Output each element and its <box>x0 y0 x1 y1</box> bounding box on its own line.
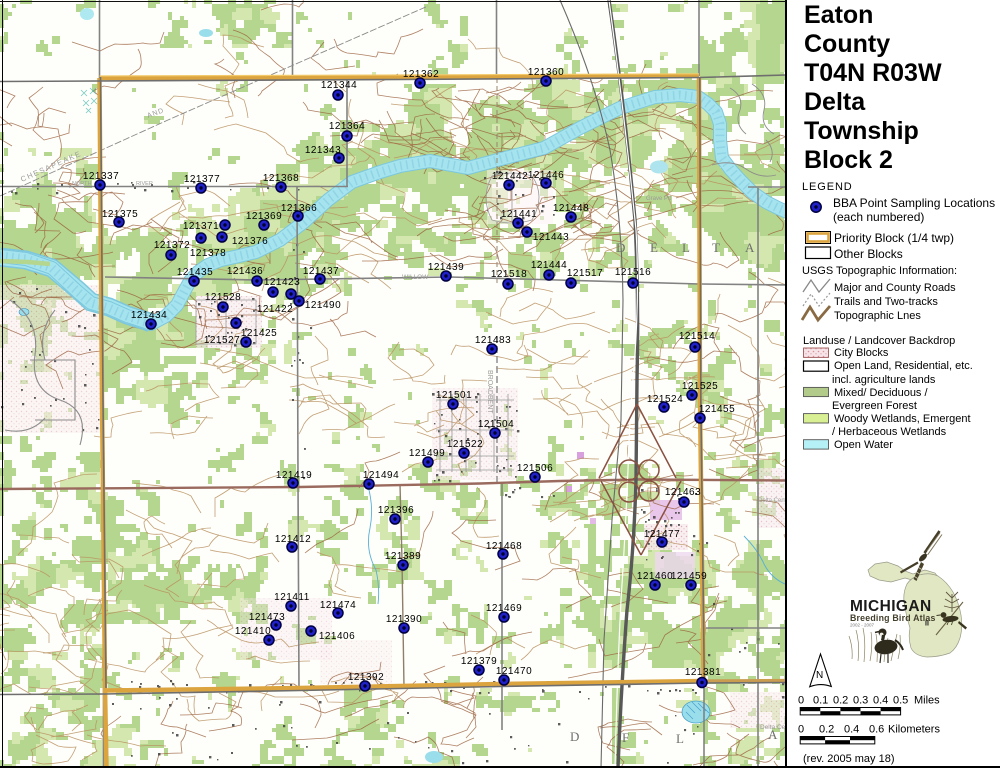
svg-text:0: 0 <box>798 695 804 707</box>
svg-text:121494: 121494 <box>363 470 399 481</box>
svg-text:121366: 121366 <box>281 203 317 214</box>
svg-text:A: A <box>745 240 755 255</box>
svg-text:121392: 121392 <box>348 672 384 683</box>
svg-text:121528: 121528 <box>205 292 241 303</box>
svg-text:121468: 121468 <box>486 541 522 552</box>
svg-text:0.4: 0.4 <box>844 724 859 736</box>
svg-text:D: D <box>616 240 625 255</box>
svg-text:BROADBENT: BROADBENT <box>486 370 493 414</box>
svg-text:121483: 121483 <box>475 335 511 346</box>
svg-text:121448: 121448 <box>553 203 589 214</box>
svg-text:121477: 121477 <box>644 529 680 540</box>
svg-text:121410: 121410 <box>235 626 271 637</box>
svg-text:121419: 121419 <box>276 470 312 481</box>
svg-text:121460: 121460 <box>637 571 673 582</box>
svg-text:121522: 121522 <box>447 439 483 450</box>
svg-text:121412: 121412 <box>275 534 311 545</box>
svg-text:121389: 121389 <box>385 551 421 562</box>
svg-text:121444: 121444 <box>531 260 567 271</box>
svg-text:0.5: 0.5 <box>893 695 908 707</box>
svg-text:121411: 121411 <box>274 592 310 603</box>
svg-text:121443: 121443 <box>533 232 569 243</box>
svg-text:0.2: 0.2 <box>819 724 834 736</box>
svg-text:121372: 121372 <box>154 240 190 251</box>
svg-text:121422: 121422 <box>257 304 293 315</box>
svg-text:121506: 121506 <box>517 463 553 474</box>
svg-text:121527: 121527 <box>204 335 240 346</box>
svg-text:Miles: Miles <box>914 695 940 707</box>
svg-text:0.1: 0.1 <box>813 695 828 707</box>
svg-text:121473: 121473 <box>249 612 285 623</box>
svg-text:121439: 121439 <box>428 262 464 273</box>
svg-text:121396: 121396 <box>378 505 414 516</box>
svg-text:121524: 121524 <box>647 394 683 405</box>
svg-text:Grave Pit: Grave Pit <box>646 196 671 202</box>
svg-text:121441: 121441 <box>501 209 537 220</box>
svg-text:121459: 121459 <box>671 571 707 582</box>
svg-text:(rev. 2005 may 18): (rev. 2005 may 18) <box>803 753 895 765</box>
svg-text:121446: 121446 <box>528 170 564 181</box>
svg-text:121463: 121463 <box>665 487 701 498</box>
svg-text:121517: 121517 <box>567 268 603 279</box>
svg-text:121434: 121434 <box>131 310 167 321</box>
svg-text:121435: 121435 <box>177 267 213 278</box>
svg-text:121337: 121337 <box>83 171 119 182</box>
svg-text:0.4: 0.4 <box>873 695 888 707</box>
svg-text:121378: 121378 <box>190 248 226 259</box>
svg-text:N: N <box>816 670 823 681</box>
svg-text:D: D <box>570 729 579 744</box>
svg-text:121499: 121499 <box>409 448 445 459</box>
svg-text:121343: 121343 <box>305 145 341 156</box>
svg-text:121379: 121379 <box>461 656 497 667</box>
svg-text:121371: 121371 <box>183 221 219 232</box>
svg-text:E: E <box>650 240 658 255</box>
svg-text:121381: 121381 <box>685 667 721 678</box>
svg-text:121360: 121360 <box>528 67 564 78</box>
svg-text:121516: 121516 <box>615 267 651 278</box>
svg-text:121436: 121436 <box>227 266 263 277</box>
svg-text:121514: 121514 <box>679 331 715 342</box>
svg-text:121368: 121368 <box>263 173 299 184</box>
svg-text:0.6: 0.6 <box>869 724 884 736</box>
svg-text:121376: 121376 <box>232 236 268 247</box>
svg-text:121469: 121469 <box>486 603 522 614</box>
svg-text:0.3: 0.3 <box>853 695 868 707</box>
svg-text:2002 - 2007: 2002 - 2007 <box>850 623 875 628</box>
svg-text:121344: 121344 <box>321 80 357 91</box>
svg-text:121437: 121437 <box>303 266 339 277</box>
svg-text:121390: 121390 <box>386 614 422 625</box>
svg-text:121364: 121364 <box>329 121 365 132</box>
svg-text:121470: 121470 <box>496 666 532 677</box>
svg-text:121406: 121406 <box>319 631 355 642</box>
svg-text:121455: 121455 <box>699 404 735 415</box>
svg-text:121423: 121423 <box>264 277 300 288</box>
svg-text:121490: 121490 <box>305 300 341 311</box>
svg-text:121501: 121501 <box>436 390 472 401</box>
svg-text:0.2: 0.2 <box>833 695 848 707</box>
svg-text:F: F <box>622 730 629 745</box>
svg-text:121377: 121377 <box>184 174 220 185</box>
svg-text:121474: 121474 <box>320 600 356 611</box>
svg-text:II: II <box>925 621 929 628</box>
svg-text:WILLOW: WILLOW <box>402 274 429 281</box>
svg-text:121375: 121375 <box>102 209 138 220</box>
svg-text:121518: 121518 <box>491 269 527 280</box>
svg-text:121442: 121442 <box>492 171 528 182</box>
svg-text:121504: 121504 <box>478 419 514 430</box>
svg-text:121362: 121362 <box>403 69 439 80</box>
svg-text:RIVER: RIVER <box>136 181 153 187</box>
svg-text:121369: 121369 <box>246 211 282 222</box>
svg-text:Breeding Bird Atlas: Breeding Bird Atlas <box>850 613 936 623</box>
svg-text:121525: 121525 <box>682 381 718 392</box>
svg-text:L: L <box>682 240 690 255</box>
svg-text:T: T <box>712 240 720 255</box>
svg-text:L: L <box>676 731 684 746</box>
svg-text:Kilometers: Kilometers <box>888 724 940 736</box>
svg-text:0: 0 <box>798 724 804 736</box>
